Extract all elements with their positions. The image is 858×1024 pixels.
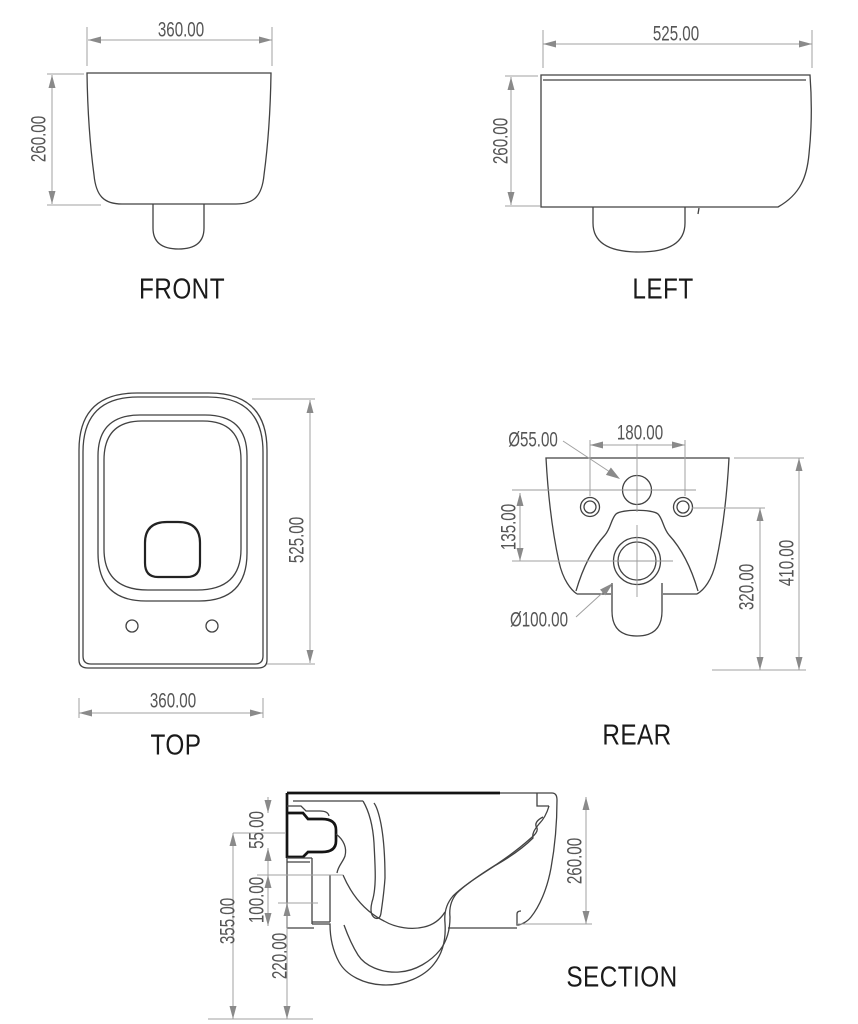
section-flush-socket	[287, 813, 336, 857]
left-view-title: LEFT	[632, 276, 693, 305]
top-depth-dim: 525.00	[287, 517, 308, 563]
front-dimension-arrows	[49, 37, 273, 205]
top-drain-outline	[145, 522, 200, 577]
left-view-drawing	[505, 30, 812, 252]
top-rim-outline	[98, 415, 247, 601]
top-seat-hole-left	[126, 620, 138, 632]
left-dimension-lines	[505, 30, 812, 206]
section-dimension-arrows	[230, 797, 590, 1019]
top-bowl-outline	[104, 421, 241, 590]
section-rim-thickness-dim: 55.00	[247, 811, 268, 849]
top-width-dim: 360.00	[150, 691, 196, 712]
rear-hole-diameter-dim: Ø55.00	[508, 430, 558, 451]
section-bowl-outer-curve	[312, 806, 549, 985]
rear-centerlines	[512, 444, 696, 597]
rear-drain-height-dim: 320.00	[737, 564, 758, 610]
left-height-dim: 260.00	[491, 118, 512, 164]
rear-hole-spacing-dim: 180.00	[617, 423, 663, 444]
section-inlet-drop-dim: 100.00	[247, 877, 268, 923]
left-dimension-arrows	[508, 41, 813, 206]
top-dimension-lines	[79, 399, 315, 718]
top-view-title: TOP	[151, 732, 202, 761]
front-dimension-lines	[47, 27, 272, 205]
technical-drawing-sheet: 360.00 260.00 FRONT 525.00 260.00 LEFT 5…	[0, 0, 858, 1024]
section-height-dim: 260.00	[565, 838, 586, 884]
section-body-outline	[287, 793, 557, 985]
top-view-drawing	[79, 393, 315, 718]
top-dimension-arrows	[79, 400, 314, 717]
section-front-wall	[517, 793, 557, 925]
front-view-drawing	[47, 27, 272, 249]
rear-hole-offset-dim: 135.00	[499, 504, 520, 550]
front-body-outline	[87, 73, 271, 249]
rear-overall-height-dim: 410.00	[777, 540, 798, 586]
rear-view-drawing	[512, 440, 806, 670]
left-body-outline	[541, 75, 811, 252]
front-outlet	[153, 204, 204, 249]
front-view-title: FRONT	[139, 276, 225, 305]
top-seat-hole-right	[206, 620, 218, 632]
front-height-dim: 260.00	[29, 116, 50, 162]
left-outlet	[593, 207, 685, 252]
rear-view-title: REAR	[602, 722, 671, 751]
section-outlet-height-dim: 220.00	[270, 933, 291, 979]
front-width-dim: 360.00	[158, 20, 204, 41]
drawing-linework	[0, 0, 858, 1024]
section-sump-floor	[343, 875, 445, 928]
left-depth-dim: 525.00	[653, 24, 699, 45]
section-weir-tongue	[363, 801, 385, 918]
section-back-height-dim: 355.00	[218, 898, 239, 944]
top-body-outline	[79, 393, 267, 668]
rear-drain-diameter-dim: Ø100.00	[510, 610, 568, 631]
section-view-title: SECTION	[566, 964, 677, 993]
section-cut-edges	[287, 793, 500, 858]
